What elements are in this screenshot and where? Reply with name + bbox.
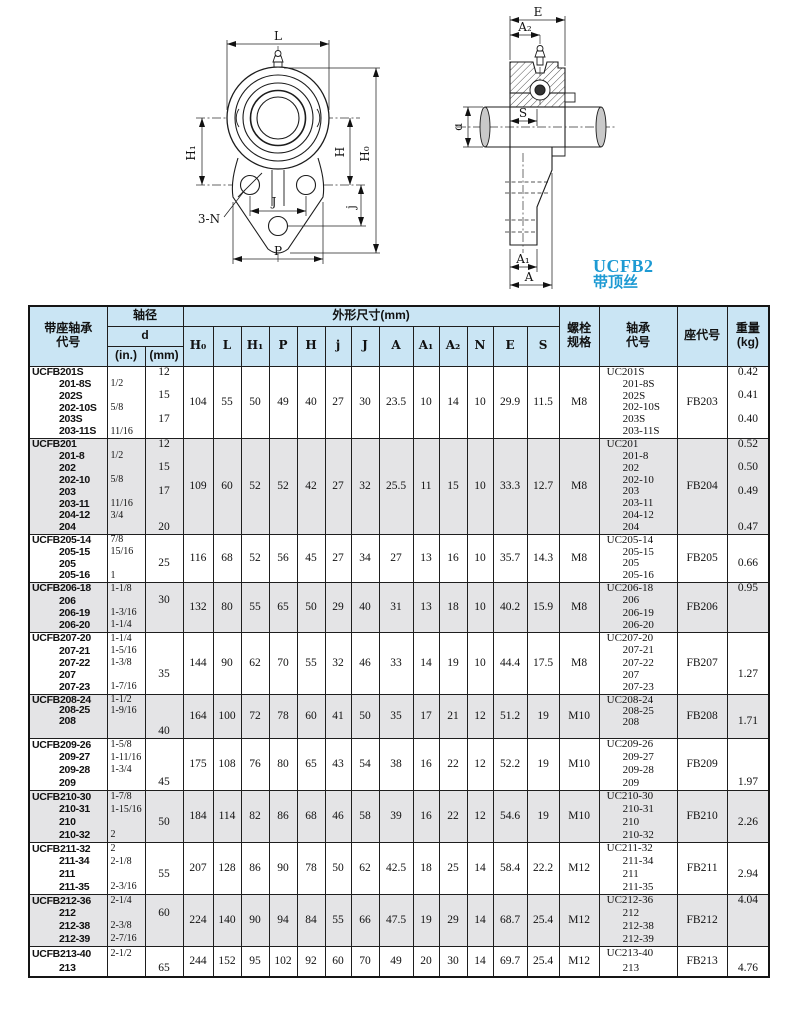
cell-line — [728, 633, 769, 645]
cell-line — [146, 619, 183, 631]
dim-label-A1: A₁ — [515, 252, 529, 266]
header-dim-H: H — [297, 326, 325, 366]
cell-line — [728, 727, 769, 738]
dim-P-cell: 86 — [269, 790, 297, 842]
dim-N-cell: 10 — [467, 632, 493, 694]
bolt-spec-cell: M8 — [559, 438, 599, 534]
cell-line: 210-31 — [30, 803, 107, 816]
cell-line: UC210-30 — [600, 791, 677, 804]
dim-E-cell: 33.3 — [493, 438, 527, 534]
cell-line: 210-31 — [600, 803, 677, 816]
dim-A-cell: 27 — [379, 534, 413, 582]
dim-H-cell: 92 — [297, 946, 325, 977]
cell-line: 25 — [146, 558, 183, 570]
dim-H1-cell: 95 — [241, 946, 269, 977]
shaft-dia-in-cell: 1-1/81-3/161-1/4 — [107, 582, 145, 632]
dim-S-cell: 12.7 — [527, 438, 559, 534]
header-shaft-dia: 轴径 — [107, 306, 183, 326]
front-view-drawing: L H₁ H H₀ j J P 3-N — [180, 10, 435, 272]
cell-line: 2-1/8 — [108, 855, 145, 868]
cell-line: 211-34 — [30, 855, 107, 868]
dim-S-cell: 14.3 — [527, 534, 559, 582]
cell-line: 50 — [146, 816, 183, 829]
dim-P-cell: 49 — [269, 366, 297, 438]
dim-label-E: E — [534, 5, 543, 19]
cell-line: 208 — [30, 716, 107, 727]
dim-L-cell: 55 — [213, 366, 241, 438]
shaft-dia-in-cell: 1/25/811/163/4 — [107, 438, 145, 534]
dim-S-cell: 17.5 — [527, 632, 559, 694]
spec-row: UCFB212-36212212-38212-392-1/42-3/82-7/1… — [29, 894, 769, 946]
housing-code-cell: FB205 — [677, 534, 727, 582]
cell-line: 1-1/4 — [108, 633, 145, 645]
cell-line: 207 — [600, 669, 677, 681]
cell-line — [728, 426, 769, 438]
cell-line — [728, 695, 769, 706]
shaft-dia-mm-cell: 50 — [145, 790, 183, 842]
cell-line: 1-3/4 — [108, 764, 145, 777]
cell-line: UCFB201 — [30, 439, 107, 451]
series-subtitle: 带顶丝 — [593, 276, 654, 292]
dim-label-S: S — [519, 106, 527, 120]
cell-line: 2.26 — [728, 816, 769, 829]
cell-line: 211 — [30, 868, 107, 881]
dim-P-cell: 90 — [269, 842, 297, 894]
cell-line: UC206-18 — [600, 583, 677, 595]
cell-line: UCFB210-30 — [30, 791, 107, 804]
cell-line: 20 — [146, 522, 183, 534]
cell-line — [728, 751, 769, 764]
dim-A-cell: 49 — [379, 946, 413, 977]
dim-S-cell: 19 — [527, 790, 559, 842]
cell-line: 209-27 — [30, 751, 107, 764]
dim-N-cell: 10 — [467, 582, 493, 632]
flange-body-section — [510, 107, 552, 245]
spec-row: UCFB209-26209-27209-282091-5/81-11/161-3… — [29, 738, 769, 790]
cell-line — [146, 947, 183, 962]
dim-A2-cell: 19 — [439, 632, 467, 694]
dim-E-cell: 40.2 — [493, 582, 527, 632]
dim-A2-cell: 22 — [439, 738, 467, 790]
cell-line — [146, 657, 183, 669]
cell-line: 205 — [600, 558, 677, 570]
dim-J-cell: 30 — [351, 366, 379, 438]
cell-line: 207-21 — [600, 645, 677, 657]
cell-line — [146, 895, 183, 908]
housing-code-cell: FB206 — [677, 582, 727, 632]
dim-label-L: L — [274, 29, 282, 43]
cell-line — [108, 669, 145, 681]
bolt-spec-cell: M8 — [559, 632, 599, 694]
cell-line: 1-1/8 — [108, 583, 145, 595]
dim-label-H1: H₁ — [184, 145, 198, 160]
dim-J-cell: 58 — [351, 790, 379, 842]
cell-line: 203-11 — [600, 498, 677, 510]
dim-J-cell: 46 — [351, 632, 379, 694]
dim-j-cell: 27 — [325, 534, 351, 582]
dim-j-cell: 27 — [325, 366, 351, 438]
bearing-code-cell: UC208-24208-25208 — [599, 694, 677, 738]
dim-H0-cell: 109 — [183, 438, 213, 534]
cell-line: 203S — [600, 414, 677, 426]
cell-line: 0.41 — [728, 390, 769, 402]
cell-line: 202S — [30, 390, 107, 402]
shaft-dia-in-cell: 1-1/41-5/161-3/81-7/16 — [107, 632, 145, 694]
cell-line: 5/8 — [108, 474, 145, 486]
cell-line — [728, 535, 769, 547]
cell-line: 204 — [600, 522, 677, 534]
unit-code-cell: UCFB213-40213 — [29, 946, 107, 977]
cell-line — [146, 881, 183, 894]
housing-code-cell: FB204 — [677, 438, 727, 534]
dim-A1-cell: 10 — [413, 366, 439, 438]
side-part-outline — [480, 46, 606, 246]
cell-line: 0.50 — [728, 462, 769, 474]
dim-j-cell: 60 — [325, 946, 351, 977]
dim-A2-cell: 14 — [439, 366, 467, 438]
dim-A-cell: 42.5 — [379, 842, 413, 894]
cell-line: UC211-32 — [600, 843, 677, 856]
cell-line: 207-23 — [600, 681, 677, 693]
spec-table-header: 带座轴承 代号 轴径 外形尺寸(mm) 螺栓 规格 轴承 代号 座代号 重量 (… — [29, 306, 769, 366]
cell-line — [728, 510, 769, 522]
header-dim-A2: A₂ — [439, 326, 467, 366]
cell-line — [146, 791, 183, 804]
housing-code-cell: FB209 — [677, 738, 727, 790]
bolt-spec-cell: M8 — [559, 582, 599, 632]
cell-line: 210-32 — [30, 829, 107, 842]
dim-A2-cell: 16 — [439, 534, 467, 582]
cell-line: 1-15/16 — [108, 803, 145, 816]
dim-N-cell: 12 — [467, 738, 493, 790]
cell-line — [108, 414, 145, 426]
header-housing-code: 座代号 — [677, 306, 727, 366]
cell-line — [146, 498, 183, 510]
cell-line: 12 — [146, 367, 183, 379]
cell-line: 2-3/16 — [108, 881, 145, 894]
header-bolt: 螺栓 规格 — [559, 306, 599, 366]
bearing-code-cell: UC210-30210-31210210-32 — [599, 790, 677, 842]
bolt-spec-cell: M8 — [559, 534, 599, 582]
dim-L-cell: 140 — [213, 894, 241, 946]
bearing-code-cell: UC211-32211-34211211-35 — [599, 842, 677, 894]
cell-line: 206-19 — [30, 607, 107, 619]
cell-line: 1.27 — [728, 669, 769, 681]
header-dim-N: N — [467, 326, 493, 366]
dim-N-cell: 14 — [467, 894, 493, 946]
dim-label-3N: 3-N — [198, 212, 220, 226]
dim-H0-cell: 244 — [183, 946, 213, 977]
spec-row: UCFB208-24208-252081-1/21-9/164016410072… — [29, 694, 769, 738]
cell-line: 30 — [146, 595, 183, 607]
cell-line — [146, 645, 183, 657]
dim-P-cell: 56 — [269, 534, 297, 582]
cell-line — [728, 607, 769, 619]
cell-line — [728, 570, 769, 582]
cell-line: 4.04 — [728, 895, 769, 908]
dim-P-cell: 80 — [269, 738, 297, 790]
dim-A2-cell: 18 — [439, 582, 467, 632]
cell-line: 1-11/16 — [108, 751, 145, 764]
cell-line: 17 — [146, 486, 183, 498]
spec-table-body: UCFB201S201-8S202S202-10S203S203-11S1/25… — [29, 366, 769, 977]
series-code: UCFB2 — [593, 257, 654, 276]
header-d: d — [107, 326, 183, 346]
cell-line — [108, 486, 145, 498]
unit-code-cell: UCFB208-24208-25208 — [29, 694, 107, 738]
cell-line: 202-10S — [600, 402, 677, 414]
cell-line — [108, 439, 145, 451]
cell-line: 209 — [30, 777, 107, 790]
dim-P-cell: 102 — [269, 946, 297, 977]
cell-line: UC212-36 — [600, 895, 677, 908]
cell-line: 1-1/4 — [108, 619, 145, 631]
spec-row: UCFB206-18206206-19206-201-1/81-3/161-1/… — [29, 582, 769, 632]
cell-line: 207-22 — [600, 657, 677, 669]
cell-line: UC209-26 — [600, 739, 677, 752]
cell-line: 0.42 — [728, 367, 769, 379]
cell-line: 211-35 — [600, 881, 677, 894]
cell-line: 3/4 — [108, 510, 145, 522]
unit-code-cell: UCFB211-32211-34211211-35 — [29, 842, 107, 894]
cell-line: 210-32 — [600, 829, 677, 842]
dim-j-cell: 41 — [325, 694, 351, 738]
cell-line: 205-15 — [600, 546, 677, 558]
cell-line: 0.52 — [728, 439, 769, 451]
weight-cell: 1.97 — [727, 738, 769, 790]
dim-A1-cell: 14 — [413, 632, 439, 694]
cell-line — [728, 595, 769, 607]
cell-line: UC205-14 — [600, 535, 677, 547]
dim-S-cell: 22.2 — [527, 842, 559, 894]
cell-line: 1-3/16 — [108, 607, 145, 619]
dim-A-cell: 38 — [379, 738, 413, 790]
dim-A2-cell: 30 — [439, 946, 467, 977]
cell-line — [146, 426, 183, 438]
cell-line: 211-35 — [30, 881, 107, 894]
spec-row: UCFB210-30210-31210210-321-7/81-15/16250… — [29, 790, 769, 842]
dim-N-cell: 12 — [467, 694, 493, 738]
header-dim-A1: A₁ — [413, 326, 439, 366]
cell-line — [728, 498, 769, 510]
cell-line: 40 — [146, 726, 183, 738]
cell-line: 2-1/2 — [108, 947, 145, 962]
dim-H0-cell: 116 — [183, 534, 213, 582]
dim-H1-cell: 52 — [241, 438, 269, 534]
dim-J-cell: 54 — [351, 738, 379, 790]
dim-J-cell: 34 — [351, 534, 379, 582]
cell-line — [146, 920, 183, 933]
hidden-lines — [505, 182, 550, 232]
cell-line: 0.66 — [728, 558, 769, 570]
dim-J-cell: 66 — [351, 894, 379, 946]
dim-A1-cell: 13 — [413, 534, 439, 582]
cell-line: 1.71 — [728, 716, 769, 728]
cell-line: 206 — [30, 595, 107, 607]
dim-A1-cell: 20 — [413, 946, 439, 977]
dim-L-cell: 114 — [213, 790, 241, 842]
shaft-dia-mm-cell: 121517 — [145, 366, 183, 438]
dim-A-cell: 23.5 — [379, 366, 413, 438]
dim-label-J: J — [270, 195, 277, 209]
cell-line — [146, 510, 183, 522]
dim-H1-cell: 55 — [241, 582, 269, 632]
spec-row: UCFB213-402132-1/26524415295102926070492… — [29, 946, 769, 977]
bolt-spec-cell: M10 — [559, 790, 599, 842]
dim-P-cell: 70 — [269, 632, 297, 694]
cell-line: 201-8 — [600, 450, 677, 462]
cell-line: 205-16 — [30, 570, 107, 582]
cell-line: 205-15 — [30, 546, 107, 558]
bolt-spec-cell: M12 — [559, 842, 599, 894]
bearing-code-cell: UC201S201-8S202S202-10S203S203-11S — [599, 366, 677, 438]
cell-line: UCFB205-14 — [30, 535, 107, 547]
cell-line: UCFB212-36 — [30, 895, 107, 908]
dim-N-cell: 10 — [467, 438, 493, 534]
header-dim-J: J — [351, 326, 379, 366]
dim-H0-cell: 164 — [183, 694, 213, 738]
cell-line: 203 — [30, 486, 107, 498]
dim-E-cell: 29.9 — [493, 366, 527, 438]
cell-line: 1-7/16 — [108, 681, 145, 693]
cell-line: UCFB213-40 — [30, 947, 107, 962]
dim-H1-cell: 86 — [241, 842, 269, 894]
header-bearing-code: 轴承 代号 — [599, 306, 677, 366]
dim-H1-cell: 52 — [241, 534, 269, 582]
cell-line: 206-19 — [600, 607, 677, 619]
dim-H-cell: 78 — [297, 842, 325, 894]
spec-table: 带座轴承 代号 轴径 外形尺寸(mm) 螺栓 规格 轴承 代号 座代号 重量 (… — [28, 305, 770, 978]
cell-line — [108, 907, 145, 920]
shaft-dia-mm-cell: 12151720 — [145, 438, 183, 534]
dim-H1-cell: 76 — [241, 738, 269, 790]
cell-line: 1-5/16 — [108, 645, 145, 657]
cell-line: 65 — [146, 961, 183, 976]
bearing-code-cell: UC213-40213 — [599, 946, 677, 977]
header-d-in: (in.) — [107, 346, 145, 366]
cell-line: UCFB211-32 — [30, 843, 107, 856]
cell-line — [146, 751, 183, 764]
bearing-code-cell: UC206-18206206-19206-20 — [599, 582, 677, 632]
dim-H-cell: 45 — [297, 534, 325, 582]
cell-line: 45 — [146, 777, 183, 790]
dim-label-d: d — [455, 123, 465, 131]
dim-H1-cell: 90 — [241, 894, 269, 946]
weight-cell: 0.420.410.40 — [727, 366, 769, 438]
dim-label-H: H — [333, 147, 347, 157]
header-dims-group: 外形尺寸(mm) — [183, 306, 559, 326]
dim-N-cell: 10 — [467, 366, 493, 438]
cell-line — [728, 907, 769, 920]
weight-cell: 4.04 — [727, 894, 769, 946]
unit-code-cell: UCFB205-14205-15205205-16 — [29, 534, 107, 582]
cell-line — [728, 881, 769, 894]
cell-line — [728, 681, 769, 693]
cell-line — [728, 843, 769, 856]
bolt-spec-cell: M10 — [559, 694, 599, 738]
cell-line — [728, 645, 769, 657]
cell-line: 204-12 — [30, 510, 107, 522]
unit-code-cell: UCFB210-30210-31210210-32 — [29, 790, 107, 842]
dim-E-cell: 69.7 — [493, 946, 527, 977]
weight-cell: 2.94 — [727, 842, 769, 894]
header-weight: 重量 (kg) — [727, 306, 769, 366]
cell-line — [146, 855, 183, 868]
header-dim-L: L — [213, 326, 241, 366]
unit-code-cell: UCFB206-18206206-19206-20 — [29, 582, 107, 632]
series-label: UCFB2 带顶丝 — [593, 257, 654, 292]
weight-cell: 0.66 — [727, 534, 769, 582]
header-d-mm: (mm) — [145, 346, 183, 366]
shaft-dia-mm-cell: 30 — [145, 582, 183, 632]
dim-H0-cell: 207 — [183, 842, 213, 894]
cell-line: 206-20 — [600, 619, 677, 631]
cell-line: 15 — [146, 390, 183, 402]
header-dim-E: E — [493, 326, 527, 366]
cell-line: 202-10 — [30, 474, 107, 486]
shaft-dia-in-cell: 1-7/81-15/162 — [107, 790, 145, 842]
cell-line — [108, 716, 145, 727]
unit-code-cell: UCFB207-20207-21207-22207207-23 — [29, 632, 107, 694]
bearing-code-cell: UC205-14205-15205205-16 — [599, 534, 677, 582]
shaft-dia-in-cell: 7/815/161 — [107, 534, 145, 582]
dim-S-cell: 15.9 — [527, 582, 559, 632]
header-dim-S: S — [527, 326, 559, 366]
shaft-dia-in-cell: 1/25/811/16 — [107, 366, 145, 438]
cell-line: 209-28 — [600, 764, 677, 777]
cell-line: 201-8 — [30, 450, 107, 462]
dim-A-cell: 31 — [379, 582, 413, 632]
cell-line: UCFB207-20 — [30, 633, 107, 645]
cell-line: 210 — [600, 816, 677, 829]
front-part-outline — [227, 51, 329, 254]
dim-H0-cell: 175 — [183, 738, 213, 790]
cell-line: 212-39 — [600, 933, 677, 946]
dim-label-H0: H₀ — [358, 146, 372, 161]
dim-J-cell: 50 — [351, 694, 379, 738]
dim-S-cell: 11.5 — [527, 366, 559, 438]
cell-line: 0.40 — [728, 414, 769, 426]
shaft-dia-in-cell: 1-5/81-11/161-3/4 — [107, 738, 145, 790]
dim-H1-cell: 82 — [241, 790, 269, 842]
cell-line: 201-8S — [30, 378, 107, 390]
cell-line: 0.95 — [728, 583, 769, 595]
shaft-dia-mm-cell: 65 — [145, 946, 183, 977]
dim-A1-cell: 17 — [413, 694, 439, 738]
cell-line: 7/8 — [108, 535, 145, 547]
dim-E-cell: 35.7 — [493, 534, 527, 582]
dim-H-cell: 60 — [297, 694, 325, 738]
dim-J-cell: 40 — [351, 582, 379, 632]
dim-L-cell: 128 — [213, 842, 241, 894]
cell-line — [108, 522, 145, 534]
cell-line — [146, 803, 183, 816]
cell-line — [108, 367, 145, 379]
cell-line: UC207-20 — [600, 633, 677, 645]
cell-line: 206 — [600, 595, 677, 607]
cell-line — [728, 764, 769, 777]
cell-line: 2-1/4 — [108, 895, 145, 908]
shaft-dia-in-cell: 1-1/21-9/16 — [107, 694, 145, 738]
cell-line: 15/16 — [108, 546, 145, 558]
dim-A2-cell: 21 — [439, 694, 467, 738]
dim-j-cell: 27 — [325, 438, 351, 534]
dim-H1-cell: 50 — [241, 366, 269, 438]
cell-line: 203-11 — [30, 498, 107, 510]
cell-line: 2-7/16 — [108, 933, 145, 946]
cell-line: 15 — [146, 462, 183, 474]
dim-H-cell: 65 — [297, 738, 325, 790]
